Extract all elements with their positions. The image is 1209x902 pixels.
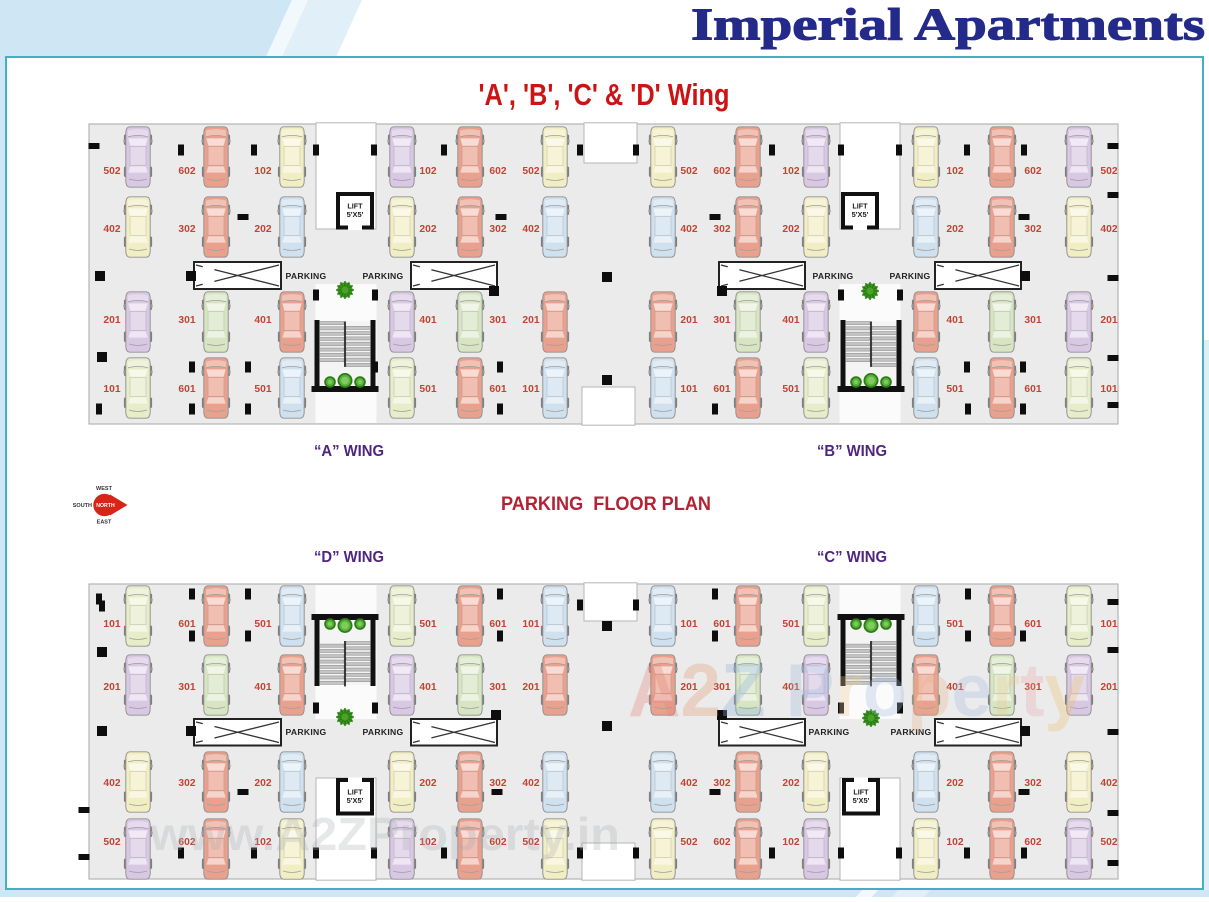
svg-text:101: 101	[1100, 619, 1117, 630]
svg-text:501: 501	[946, 384, 963, 395]
svg-text:5'X5': 5'X5'	[852, 210, 869, 219]
svg-text:“D” WING: “D” WING	[314, 549, 384, 566]
svg-text:201: 201	[680, 315, 697, 326]
svg-text:501: 501	[782, 619, 799, 630]
svg-text:502: 502	[680, 837, 697, 848]
svg-text:302: 302	[1024, 778, 1041, 789]
svg-text:302: 302	[178, 778, 195, 789]
svg-text:202: 202	[419, 224, 436, 235]
svg-text:5'X5': 5'X5'	[347, 796, 364, 805]
svg-text:102: 102	[254, 166, 271, 177]
svg-text:401: 401	[782, 315, 799, 326]
svg-text:202: 202	[946, 778, 963, 789]
svg-text:5'X5': 5'X5'	[853, 796, 870, 805]
svg-text:302: 302	[713, 778, 730, 789]
svg-text:PARKING: PARKING	[362, 727, 403, 737]
svg-text:402: 402	[522, 778, 539, 789]
svg-text:PARKING: PARKING	[889, 271, 930, 281]
svg-text:201: 201	[522, 682, 539, 693]
svg-text:602: 602	[713, 166, 730, 177]
svg-text:502: 502	[1100, 166, 1117, 177]
svg-text:501: 501	[419, 619, 436, 630]
svg-text:401: 401	[254, 682, 271, 693]
svg-text:101: 101	[680, 384, 697, 395]
svg-text:402: 402	[680, 224, 697, 235]
svg-text:601: 601	[489, 619, 506, 630]
svg-text:“C” WING: “C” WING	[817, 549, 887, 566]
svg-text:102: 102	[946, 166, 963, 177]
svg-text:301: 301	[178, 682, 195, 693]
svg-text:202: 202	[946, 224, 963, 235]
svg-text:301: 301	[1024, 315, 1041, 326]
svg-text:602: 602	[178, 166, 195, 177]
svg-text:'A', 'B', 'C' & 'D' Wing: 'A', 'B', 'C' & 'D' Wing	[479, 77, 730, 112]
svg-text:PARKING: PARKING	[812, 271, 853, 281]
svg-text:501: 501	[419, 384, 436, 395]
svg-text:201: 201	[522, 315, 539, 326]
svg-text:601: 601	[1024, 384, 1041, 395]
svg-text:PARKING: PARKING	[285, 271, 326, 281]
svg-text:402: 402	[522, 224, 539, 235]
svg-text:202: 202	[254, 224, 271, 235]
svg-text:302: 302	[1024, 224, 1041, 235]
svg-text:201: 201	[1100, 682, 1117, 693]
svg-text:101: 101	[103, 384, 120, 395]
svg-text:PARKING FLOOR PLAN: PARKING FLOOR PLAN	[501, 494, 711, 515]
svg-text:402: 402	[1100, 224, 1117, 235]
svg-text:102: 102	[946, 837, 963, 848]
svg-text:302: 302	[178, 224, 195, 235]
svg-text:501: 501	[254, 619, 271, 630]
svg-text:402: 402	[103, 778, 120, 789]
svg-text:201: 201	[103, 315, 120, 326]
svg-text:301: 301	[178, 315, 195, 326]
svg-text:301: 301	[489, 315, 506, 326]
svg-text:201: 201	[103, 682, 120, 693]
svg-text:601: 601	[713, 619, 730, 630]
svg-text:WEST: WEST	[96, 486, 113, 492]
svg-text:102: 102	[782, 166, 799, 177]
svg-text:EAST: EAST	[97, 520, 112, 526]
svg-text:601: 601	[489, 384, 506, 395]
svg-text:PARKING: PARKING	[362, 271, 403, 281]
svg-text:102: 102	[419, 166, 436, 177]
svg-text:101: 101	[680, 619, 697, 630]
svg-text:102: 102	[782, 837, 799, 848]
svg-text:601: 601	[713, 384, 730, 395]
svg-text:402: 402	[1100, 778, 1117, 789]
svg-text:202: 202	[419, 778, 436, 789]
svg-text:201: 201	[1100, 315, 1117, 326]
svg-text:602: 602	[1024, 837, 1041, 848]
svg-text:501: 501	[254, 384, 271, 395]
svg-text:502: 502	[1100, 837, 1117, 848]
svg-text:202: 202	[782, 224, 799, 235]
svg-text:302: 302	[489, 778, 506, 789]
svg-text:502: 502	[522, 166, 539, 177]
svg-text:5'X5': 5'X5'	[347, 210, 364, 219]
svg-text:302: 302	[713, 224, 730, 235]
svg-text:402: 402	[680, 778, 697, 789]
svg-text:“A” WING: “A” WING	[314, 443, 384, 460]
svg-text:www.A2ZProperty.in: www.A2ZProperty.in	[149, 808, 620, 860]
svg-text:501: 501	[782, 384, 799, 395]
svg-text:202: 202	[254, 778, 271, 789]
svg-text:501: 501	[946, 619, 963, 630]
svg-text:601: 601	[1024, 619, 1041, 630]
svg-text:Imperial Apartments: Imperial Apartments	[691, 0, 1205, 50]
svg-text:602: 602	[713, 837, 730, 848]
svg-text:A2Z Property: A2Z Property	[628, 648, 1085, 732]
svg-text:401: 401	[419, 682, 436, 693]
svg-text:502: 502	[680, 166, 697, 177]
svg-text:401: 401	[419, 315, 436, 326]
svg-text:“B” WING: “B” WING	[817, 443, 887, 460]
svg-text:502: 502	[103, 837, 120, 848]
svg-text:101: 101	[522, 384, 539, 395]
svg-text:402: 402	[103, 224, 120, 235]
svg-text:NORTH: NORTH	[96, 503, 115, 509]
svg-text:602: 602	[1024, 166, 1041, 177]
svg-text:301: 301	[489, 682, 506, 693]
svg-text:101: 101	[103, 619, 120, 630]
svg-text:202: 202	[782, 778, 799, 789]
svg-text:601: 601	[178, 619, 195, 630]
svg-text:301: 301	[713, 315, 730, 326]
svg-text:SOUTH: SOUTH	[73, 503, 92, 509]
svg-text:401: 401	[254, 315, 271, 326]
svg-text:101: 101	[522, 619, 539, 630]
svg-text:401: 401	[946, 315, 963, 326]
svg-text:601: 601	[178, 384, 195, 395]
svg-text:502: 502	[103, 166, 120, 177]
svg-text:602: 602	[489, 166, 506, 177]
svg-text:302: 302	[489, 224, 506, 235]
svg-text:PARKING: PARKING	[285, 727, 326, 737]
svg-text:101: 101	[1100, 384, 1117, 395]
